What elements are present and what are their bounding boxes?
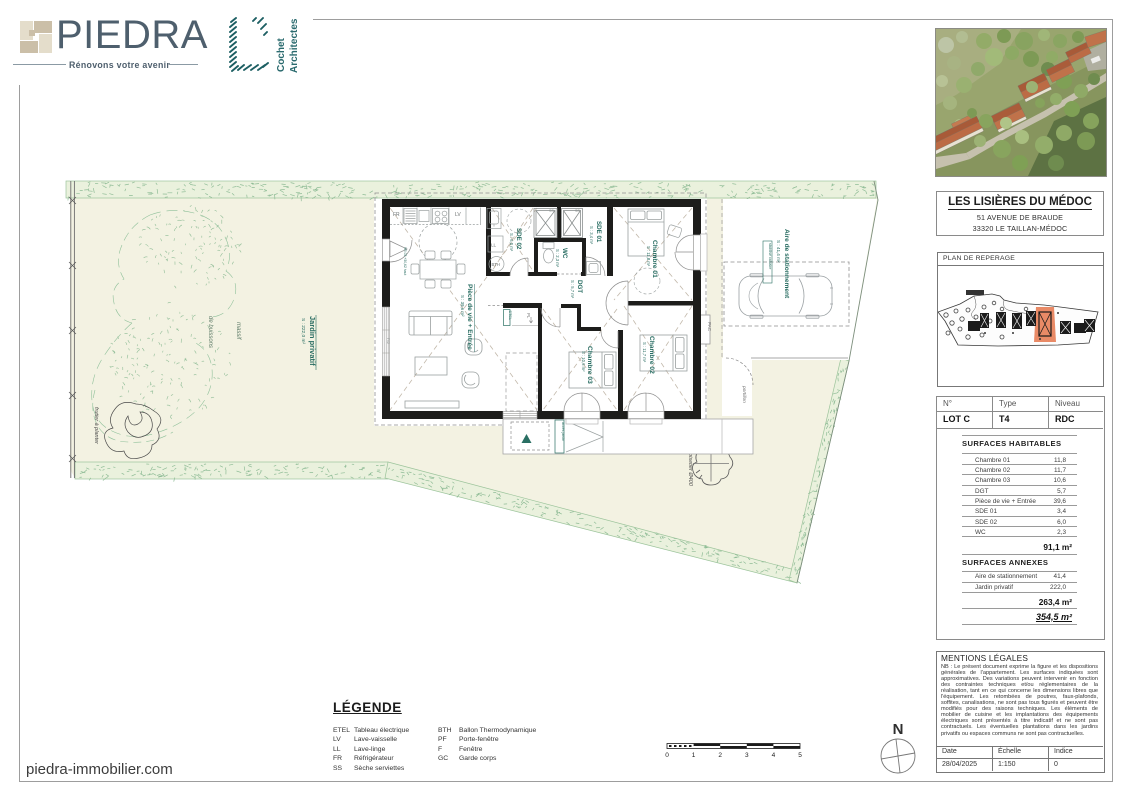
svg-text:S : 11,8 m²: S : 11,8 m² — [646, 246, 651, 267]
svg-text:Chambre 01: Chambre 01 — [651, 240, 658, 278]
svg-text:de buissons: de buissons — [207, 316, 213, 348]
svg-text:WC: WC — [561, 248, 568, 259]
svg-text:S : 39,6 m²: S : 39,6 m² — [460, 295, 465, 317]
svg-text:LL: LL — [491, 243, 497, 248]
svg-text:1: 1 — [692, 752, 696, 759]
svg-text:S : 3,4 m²: S : 3,4 m² — [589, 226, 594, 245]
svg-text:noisetier Ø400: noisetier Ø400 — [687, 450, 693, 487]
svg-text:LV: LV — [455, 212, 461, 218]
svg-text:SS: SS — [575, 209, 580, 213]
svg-text:Jardin privatif: Jardin privatif — [308, 316, 317, 366]
svg-text:S : 41,4 m²: S : 41,4 m² — [776, 240, 781, 263]
svg-text:BTH: BTH — [492, 262, 500, 267]
svg-text:Pièce de vie + Entrée: Pièce de vie + Entrée — [466, 284, 473, 350]
svg-text:frutier à planter: frutier à planter — [93, 407, 99, 445]
svg-text:ETEL: ETEL — [508, 311, 512, 321]
svg-text:SDE 02: SDE 02 — [515, 228, 522, 250]
svg-text:4: 4 — [772, 752, 776, 759]
svg-text:S : 11,7 m²: S : 11,7 m² — [642, 342, 647, 363]
svg-text:VR.03 +30,62 haut: VR.03 +30,62 haut — [403, 247, 407, 275]
svg-text:S : 5,7 m²: S : 5,7 m² — [570, 280, 575, 299]
svg-text:N: N — [893, 721, 904, 738]
svg-text:S : 6,0 m²: S : 6,0 m² — [509, 233, 514, 252]
svg-text:Chambre 02: Chambre 02 — [648, 336, 655, 374]
svg-text:S : 10,6 m²: S : 10,6 m² — [581, 351, 586, 372]
svg-text:S : 2,3 m²: S : 2,3 m² — [555, 249, 560, 268]
svg-text:0: 0 — [665, 752, 669, 759]
svg-text:stabilisé calcaire: stabilisé calcaire — [768, 243, 772, 269]
svg-text:PAC: PAC — [707, 322, 712, 332]
svg-text:2: 2 — [718, 752, 722, 759]
svg-text:DGT: DGT — [576, 280, 583, 293]
svg-text:5: 5 — [798, 752, 802, 759]
svg-text:massif: massif — [235, 322, 241, 341]
svg-text:3: 3 — [745, 752, 749, 759]
svg-text:SDE 01: SDE 01 — [595, 221, 602, 243]
svg-text:SS: SS — [549, 209, 554, 213]
svg-text:FR: FR — [393, 212, 400, 218]
svg-text:Chambre 03: Chambre 03 — [586, 346, 593, 384]
svg-text:Aire de stationnement: Aire de stationnement — [783, 229, 790, 299]
svg-text:F02: F02 — [386, 338, 390, 344]
svg-text:PL: PL — [526, 313, 531, 319]
svg-text:S : 222,0 m²: S : 222,0 m² — [300, 318, 306, 345]
svg-text:portillon: portillon — [741, 385, 747, 403]
svg-text:accès jardin: accès jardin — [561, 422, 565, 441]
